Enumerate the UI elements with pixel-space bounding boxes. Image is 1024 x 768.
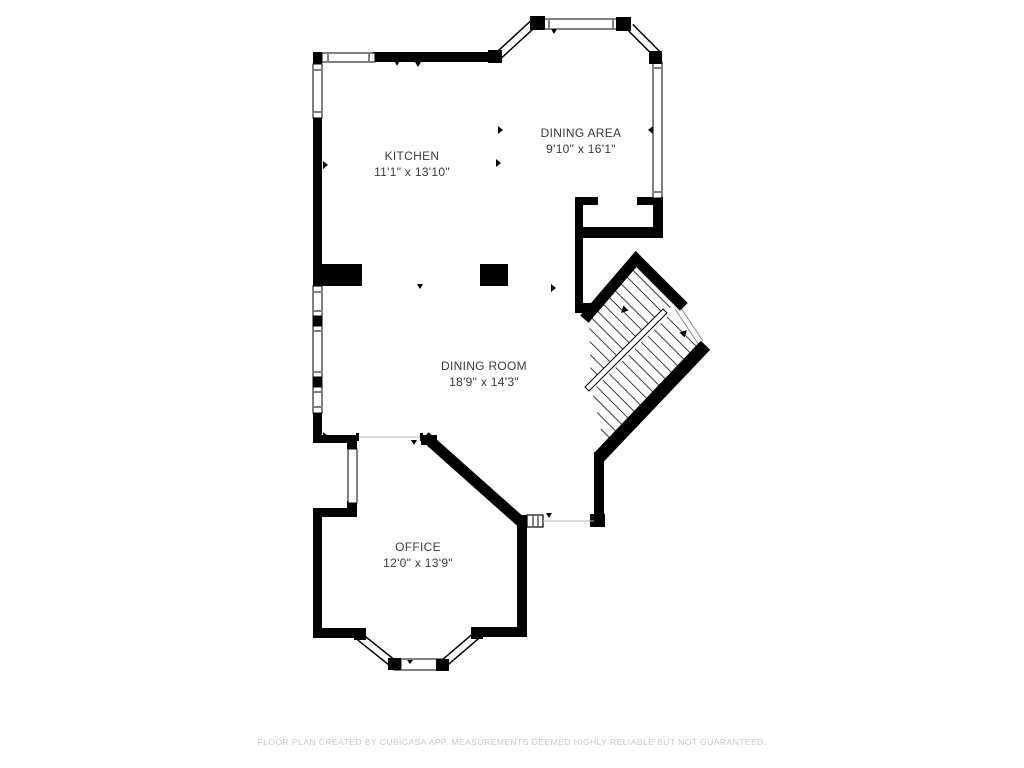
room-label-dining-area: DINING AREA 9'10" x 16'1" <box>541 125 622 157</box>
office-diagonal-wall <box>429 440 520 521</box>
room-name: DINING ROOM <box>441 358 527 374</box>
room-dimensions: 9'10" x 16'1" <box>541 141 622 157</box>
room-dimensions: 11'1" x 13'10" <box>374 164 450 180</box>
room-name: DINING AREA <box>541 125 622 141</box>
room-label-kitchen: KITCHEN 11'1" x 13'10" <box>374 148 450 180</box>
room-label-dining-room: DINING ROOM 18'9" x 14'3" <box>441 358 527 390</box>
staircase <box>585 259 703 452</box>
room-name: OFFICE <box>383 539 453 555</box>
footer-disclaimer: FLOOR PLAN CREATED BY CUBICASA APP. MEAS… <box>257 737 766 747</box>
office-door <box>527 515 543 527</box>
room-dimensions: 18'9" x 14'3" <box>441 374 527 390</box>
kitchen-top-window <box>322 53 375 62</box>
dining-right-window <box>653 62 662 198</box>
dining-room-left-windows <box>313 286 322 413</box>
floor-plan-page: KITCHEN 11'1" x 13'10" DINING AREA 9'10"… <box>0 0 1024 768</box>
dining-bay-right-window <box>630 27 657 54</box>
dining-bay-left-window <box>497 23 534 57</box>
kitchen-left-window <box>313 64 322 118</box>
room-label-office: OFFICE 12'0" x 13'9" <box>383 539 453 571</box>
dining-bay-top-window <box>543 19 619 29</box>
column <box>480 264 508 286</box>
closet-door-leaf <box>348 449 357 503</box>
room-dimensions: 12'0" x 13'9" <box>383 555 453 571</box>
room-name: KITCHEN <box>374 148 450 164</box>
kitchen-wall-stub <box>313 264 362 286</box>
